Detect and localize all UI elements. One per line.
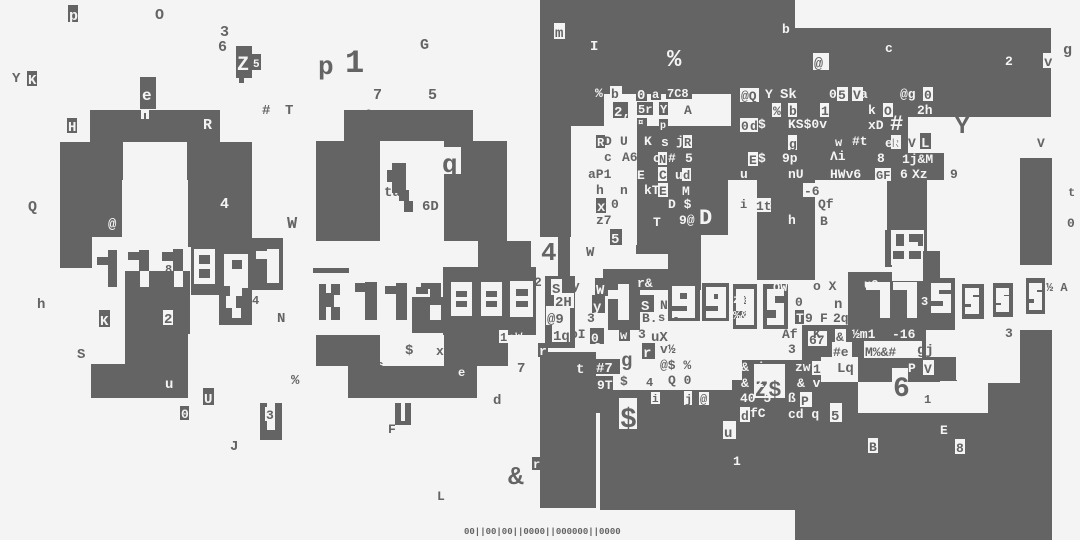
svg-text:uG: uG <box>864 278 878 292</box>
svg-text:& v: & v <box>797 376 821 391</box>
svg-text:6: 6 <box>218 39 227 56</box>
svg-text:2q: 2q <box>833 311 849 326</box>
svg-text:a: a <box>652 88 659 102</box>
svg-text:w: w <box>835 136 843 150</box>
svg-text:F: F <box>820 311 828 326</box>
svg-text:Q 0: Q 0 <box>668 373 692 388</box>
svg-text:0: 0 <box>741 119 749 134</box>
svg-text:#: # <box>890 112 903 137</box>
svg-text:B.: B. <box>642 311 658 326</box>
svg-text:p: p <box>69 8 78 25</box>
svg-text:0: 0 <box>924 88 932 103</box>
svg-text:q: q <box>442 150 458 180</box>
svg-text:¤: ¤ <box>638 118 643 128</box>
svg-text:r: r <box>533 458 540 472</box>
svg-text:h: h <box>788 213 796 228</box>
svg-text:9p: 9p <box>782 151 798 166</box>
svg-text:4: 4 <box>252 294 259 308</box>
svg-text:w: w <box>620 329 628 343</box>
svg-text:D: D <box>699 206 712 231</box>
svg-text:z7: z7 <box>596 213 612 228</box>
svg-text:#e: #e <box>833 345 849 360</box>
svg-text:$: $ <box>620 374 628 389</box>
svg-text:u: u <box>740 167 748 182</box>
svg-text:3: 3 <box>1005 326 1013 341</box>
svg-text:5: 5 <box>685 151 693 166</box>
svg-text:j: j <box>685 393 692 407</box>
svg-text:G: G <box>420 37 429 54</box>
svg-text:B: B <box>869 440 877 455</box>
svg-text:5: 5 <box>253 59 260 71</box>
svg-text:0: 0 <box>829 87 837 102</box>
svg-text:E: E <box>940 423 948 438</box>
svg-text:1: 1 <box>500 331 507 345</box>
svg-text:K: K <box>813 327 821 342</box>
svg-text:OW: OW <box>773 281 788 295</box>
svg-text:Qf: Qf <box>818 197 834 212</box>
svg-text:n: n <box>620 183 628 198</box>
svg-text:m: m <box>619 296 627 311</box>
svg-text:@$ %: @$ % <box>660 358 691 373</box>
svg-text:ß: ß <box>788 391 796 406</box>
svg-text:#7: #7 <box>596 361 613 377</box>
svg-text:u: u <box>724 426 732 442</box>
svg-text:%: % <box>773 104 781 119</box>
svg-text:3: 3 <box>266 408 274 423</box>
svg-text:zw: zw <box>795 360 811 375</box>
svg-text:t: t <box>1068 186 1075 200</box>
svg-text:Sk: Sk <box>780 87 797 103</box>
svg-text:1j&M: 1j&M <box>902 152 933 167</box>
svg-text:4: 4 <box>220 196 229 213</box>
svg-text:7C8: 7C8 <box>667 87 689 101</box>
svg-text:s: s <box>661 135 669 150</box>
svg-text:nU: nU <box>788 167 804 182</box>
svg-text:5: 5 <box>428 87 437 104</box>
svg-text:9: 9 <box>950 167 958 182</box>
svg-text:%: % <box>291 373 300 389</box>
svg-text:K: K <box>100 314 109 330</box>
svg-text:B: B <box>820 214 828 229</box>
svg-text:0: 0 <box>611 197 619 212</box>
svg-text:%: % <box>667 47 682 74</box>
svg-text:o X: o X <box>813 279 837 294</box>
svg-text:9T: 9T <box>597 378 613 393</box>
svg-text:c: c <box>885 41 893 56</box>
svg-text:E: E <box>749 153 757 168</box>
svg-text:kT: kT <box>644 183 660 198</box>
svg-text:2h: 2h <box>917 103 933 118</box>
svg-text:7: 7 <box>373 87 382 104</box>
svg-text:D $: D $ <box>668 197 692 212</box>
svg-text:5: 5 <box>838 88 846 103</box>
svg-text:5: 5 <box>831 409 839 425</box>
svg-text:2: 2 <box>164 312 172 328</box>
svg-text:9@: 9@ <box>679 213 695 228</box>
svg-text:eR: eR <box>885 136 901 151</box>
svg-text:@: @ <box>700 393 707 407</box>
svg-text:z%: z% <box>733 293 748 307</box>
svg-text:Y: Y <box>12 71 21 87</box>
svg-text:u: u <box>165 377 173 393</box>
svg-text:00||00|00||0000||000000||0000: 00||00|00||0000||000000||0000 <box>464 527 621 537</box>
svg-text:d: d <box>683 169 690 183</box>
svg-text:6: 6 <box>893 374 910 405</box>
svg-text:i: i <box>740 198 747 212</box>
svg-text:½ A: ½ A <box>1046 281 1068 295</box>
svg-text:-16: -16 <box>892 327 916 342</box>
svg-text:$: $ <box>758 151 766 166</box>
svg-text:& Z: & Z <box>741 376 765 391</box>
svg-text:F: F <box>388 422 396 437</box>
svg-text:Xz: Xz <box>912 167 928 182</box>
svg-text:$: $ <box>770 197 778 212</box>
svg-text:W: W <box>586 245 595 261</box>
svg-text:xD: xD <box>868 118 884 133</box>
svg-text:·w: ·w <box>508 329 523 343</box>
svg-text:n: n <box>477 363 485 378</box>
svg-text:R: R <box>203 117 212 134</box>
svg-text:2,: 2, <box>614 105 631 121</box>
svg-text:6D: 6D <box>422 199 439 215</box>
svg-text:8: 8 <box>594 341 601 355</box>
svg-text:#: # <box>262 103 270 119</box>
svg-text:L: L <box>921 136 929 152</box>
svg-text:Y: Y <box>765 87 773 102</box>
svg-text:Lq: Lq <box>837 361 854 377</box>
svg-text:b: b <box>782 22 790 37</box>
svg-text:K: K <box>28 73 37 89</box>
svg-text:#t: #t <box>852 134 868 149</box>
svg-text:&: & <box>508 462 524 492</box>
svg-text:7: 7 <box>517 361 525 377</box>
svg-text:T: T <box>285 103 293 119</box>
svg-text:T: T <box>653 215 661 230</box>
svg-text:g: g <box>1063 42 1072 59</box>
svg-text:$: $ <box>620 405 637 436</box>
svg-text:fC: fC <box>750 406 766 421</box>
svg-text:4: 4 <box>646 376 653 390</box>
svg-text:s -: s - <box>658 311 680 325</box>
svg-text:d: d <box>750 119 758 134</box>
svg-text:e: e <box>142 87 152 105</box>
svg-text:8: 8 <box>956 441 964 456</box>
svg-text:1q: 1q <box>553 329 570 345</box>
svg-text:V: V <box>908 136 916 151</box>
svg-text:C: C <box>659 168 667 183</box>
svg-text:Y: Y <box>955 114 970 141</box>
svg-text:$: $ <box>758 117 766 132</box>
svg-text:m: m <box>555 26 563 42</box>
svg-text:KS$0v: KS$0v <box>788 117 827 132</box>
svg-text:3: 3 <box>587 311 595 326</box>
svg-text:0: 0 <box>1067 216 1075 231</box>
svg-text:S: S <box>552 282 560 298</box>
svg-text:3: 3 <box>921 295 928 309</box>
svg-text:v½: v½ <box>660 342 676 357</box>
svg-text:@: @ <box>108 217 117 233</box>
svg-text:1: 1 <box>924 393 931 407</box>
svg-text:HWv6: HWv6 <box>830 167 861 182</box>
svg-text:i: i <box>652 394 659 406</box>
svg-text:E: E <box>637 168 645 183</box>
svg-text:Λi: Λi <box>830 149 846 164</box>
svg-text:b: b <box>611 87 619 102</box>
svg-text:j: j <box>676 134 684 149</box>
svg-text:1: 1 <box>345 45 364 82</box>
svg-text:d: d <box>493 393 501 409</box>
svg-text:@g: @g <box>900 87 916 102</box>
svg-text:I: I <box>590 39 598 55</box>
svg-text:1: 1 <box>733 454 741 469</box>
svg-text:8: 8 <box>877 151 885 166</box>
svg-text:v: v <box>1044 55 1053 71</box>
svg-text:a: a <box>860 87 868 102</box>
svg-text:O: O <box>155 7 164 24</box>
svg-text:H: H <box>68 120 76 136</box>
svg-text:o: o <box>365 106 372 120</box>
svg-text:V: V <box>924 362 932 377</box>
svg-text:@Q: @Q <box>741 89 757 104</box>
svg-text:#: # <box>668 151 676 166</box>
svg-text:p: p <box>318 52 334 82</box>
svg-text:y: y <box>572 279 580 294</box>
svg-text:40 5: 40 5 <box>740 391 771 406</box>
svg-text:R: R <box>684 136 692 150</box>
svg-text:0: 0 <box>181 407 189 422</box>
svg-text:ta: ta <box>384 185 401 201</box>
svg-text:cd q: cd q <box>788 407 819 422</box>
svg-text:P: P <box>908 361 916 376</box>
svg-text:r&: r& <box>637 276 653 291</box>
svg-text:k: k <box>868 103 876 118</box>
svg-text:r: r <box>539 344 547 359</box>
svg-text:h: h <box>37 297 45 313</box>
svg-text:M%&#: M%&# <box>865 345 896 360</box>
svg-text:r: r <box>643 346 651 362</box>
svg-text:5r: 5r <box>638 103 652 117</box>
svg-text:N: N <box>277 311 285 327</box>
svg-text:W: W <box>287 215 298 234</box>
svg-text:$: $ <box>405 343 413 359</box>
svg-text:3: 3 <box>638 327 646 342</box>
svg-text:0: 0 <box>795 295 803 310</box>
svg-text:Q: Q <box>28 199 37 216</box>
svg-text:%: % <box>595 86 603 101</box>
svg-text:S: S <box>77 347 85 363</box>
svg-text:gj: gj <box>917 343 934 359</box>
svg-text:U: U <box>620 134 628 149</box>
svg-text:g: g <box>621 350 632 372</box>
svg-text:2: 2 <box>534 275 542 290</box>
svg-text:s: s <box>376 358 384 373</box>
svg-text:A66: A66 <box>622 150 646 165</box>
svg-text:c: c <box>604 150 612 165</box>
svg-text:Af: Af <box>782 327 798 342</box>
svg-text:%&: %& <box>733 309 748 323</box>
svg-text:e: e <box>458 366 465 380</box>
svg-text:½m1: ½m1 <box>852 327 876 342</box>
svg-text:Y: Y <box>660 103 668 117</box>
svg-text:t: t <box>576 362 584 378</box>
svg-text:u: u <box>675 168 683 183</box>
svg-text:5: 5 <box>611 232 619 248</box>
svg-text:Z: Z <box>237 54 249 77</box>
svg-text:c: c <box>653 151 661 166</box>
svg-text:K: K <box>644 134 652 149</box>
svg-text:GF: GF <box>876 169 890 183</box>
svg-text:x: x <box>436 344 444 359</box>
svg-text:d: d <box>741 409 749 424</box>
svg-text:L: L <box>437 489 445 504</box>
svg-text:U: U <box>204 392 212 408</box>
svg-text:h: h <box>596 183 604 198</box>
svg-text:E: E <box>659 184 667 199</box>
svg-text:p: p <box>660 121 666 132</box>
svg-text:9: 9 <box>805 311 813 326</box>
svg-text:@: @ <box>814 56 823 73</box>
svg-text:4: 4 <box>541 238 557 268</box>
svg-text:N: N <box>660 298 668 313</box>
svg-text:8: 8 <box>165 263 172 277</box>
svg-text:oI: oI <box>570 327 586 342</box>
svg-text:1: 1 <box>813 362 821 377</box>
svg-text:A: A <box>684 103 692 118</box>
svg-text:D: D <box>604 134 612 149</box>
svg-text:& j: & j <box>741 360 764 375</box>
svg-text:6: 6 <box>900 167 908 182</box>
svg-text:0: 0 <box>637 88 645 104</box>
svg-text:V: V <box>1037 136 1045 151</box>
svg-text:2: 2 <box>1005 54 1013 69</box>
svg-text:J: J <box>230 439 238 455</box>
svg-text:3: 3 <box>788 342 796 357</box>
svg-text:T: T <box>796 311 804 326</box>
svg-text:g: g <box>789 137 797 152</box>
svg-text:aP1: aP1 <box>588 167 612 182</box>
